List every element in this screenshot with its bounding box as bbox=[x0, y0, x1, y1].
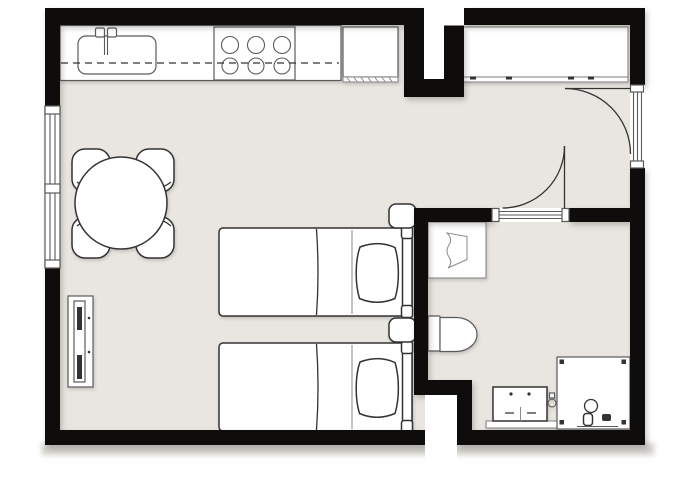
bathroom-partition-wall bbox=[414, 208, 428, 382]
bottom-wall-notch bbox=[425, 395, 457, 470]
sink-basin bbox=[78, 36, 156, 74]
washbasin-counter bbox=[428, 222, 486, 278]
knob bbox=[88, 351, 91, 354]
knob bbox=[88, 317, 91, 320]
shower-tray bbox=[557, 357, 630, 429]
bathroom-jog-wall-horizontal bbox=[414, 380, 472, 395]
window-mullion bbox=[45, 184, 60, 193]
bathroom-jog-wall-vertical bbox=[457, 395, 472, 431]
nightstand-2 bbox=[389, 318, 416, 342]
exterior-wall-right-lower bbox=[630, 168, 645, 445]
door-jamb-block bbox=[631, 85, 644, 92]
window-sill-block bbox=[45, 260, 60, 268]
top-wall-gap bbox=[424, 0, 464, 26]
door-jamb-block bbox=[631, 161, 644, 168]
dining-set bbox=[72, 149, 174, 258]
tv-screen-segment bbox=[77, 355, 82, 379]
tv-screen-segment bbox=[77, 307, 82, 330]
toilet-tank bbox=[428, 316, 440, 351]
stove bbox=[214, 27, 295, 80]
exterior-wall-top-left bbox=[45, 8, 424, 25]
tv-stand bbox=[68, 296, 93, 387]
door-jamb-block bbox=[492, 209, 499, 222]
closet-front bbox=[458, 77, 628, 82]
tap-base bbox=[550, 393, 555, 398]
dining-table bbox=[75, 157, 167, 249]
shower bbox=[557, 357, 630, 429]
hall-partition-wall-east bbox=[569, 208, 630, 222]
shaft-void bbox=[424, 24, 444, 79]
vanity-plinth bbox=[486, 421, 557, 428]
closet-handle bbox=[588, 77, 594, 80]
shower-corner-marker bbox=[622, 360, 627, 365]
kitchen-unit bbox=[343, 27, 398, 82]
toilet bbox=[428, 316, 477, 352]
toilet-bowl bbox=[440, 318, 477, 352]
closet-outline bbox=[458, 27, 628, 77]
faucet-handle bbox=[108, 28, 117, 37]
floorplan-image bbox=[0, 0, 700, 500]
exterior-wall-bottom-left bbox=[45, 430, 425, 445]
exterior-wall-right-upper bbox=[630, 8, 645, 85]
closet bbox=[458, 27, 628, 82]
bed-1 bbox=[219, 227, 413, 318]
knob bbox=[527, 392, 530, 395]
shower-corner-marker bbox=[622, 420, 627, 425]
exterior-wall-bottom-right bbox=[457, 430, 645, 445]
exterior-wall-top-right bbox=[464, 8, 645, 25]
nightstand-1 bbox=[389, 204, 416, 228]
window bbox=[45, 106, 60, 268]
unit-outline bbox=[343, 27, 398, 77]
closet-handle bbox=[506, 77, 512, 80]
closet-handle bbox=[470, 77, 476, 80]
door-jamb-block bbox=[562, 209, 569, 222]
shower-corner-marker bbox=[560, 420, 565, 425]
faucet-handle bbox=[96, 28, 105, 37]
bed-2 bbox=[219, 342, 413, 433]
washbasin-top bbox=[428, 222, 486, 278]
knob bbox=[509, 392, 512, 395]
kitchen-counter bbox=[60, 26, 398, 83]
closet-handle bbox=[568, 77, 574, 80]
shower-corner-marker bbox=[560, 360, 565, 365]
vanity-cabinet bbox=[486, 387, 557, 428]
floorplan-svg bbox=[0, 0, 700, 500]
window-sill-block bbox=[45, 106, 60, 114]
